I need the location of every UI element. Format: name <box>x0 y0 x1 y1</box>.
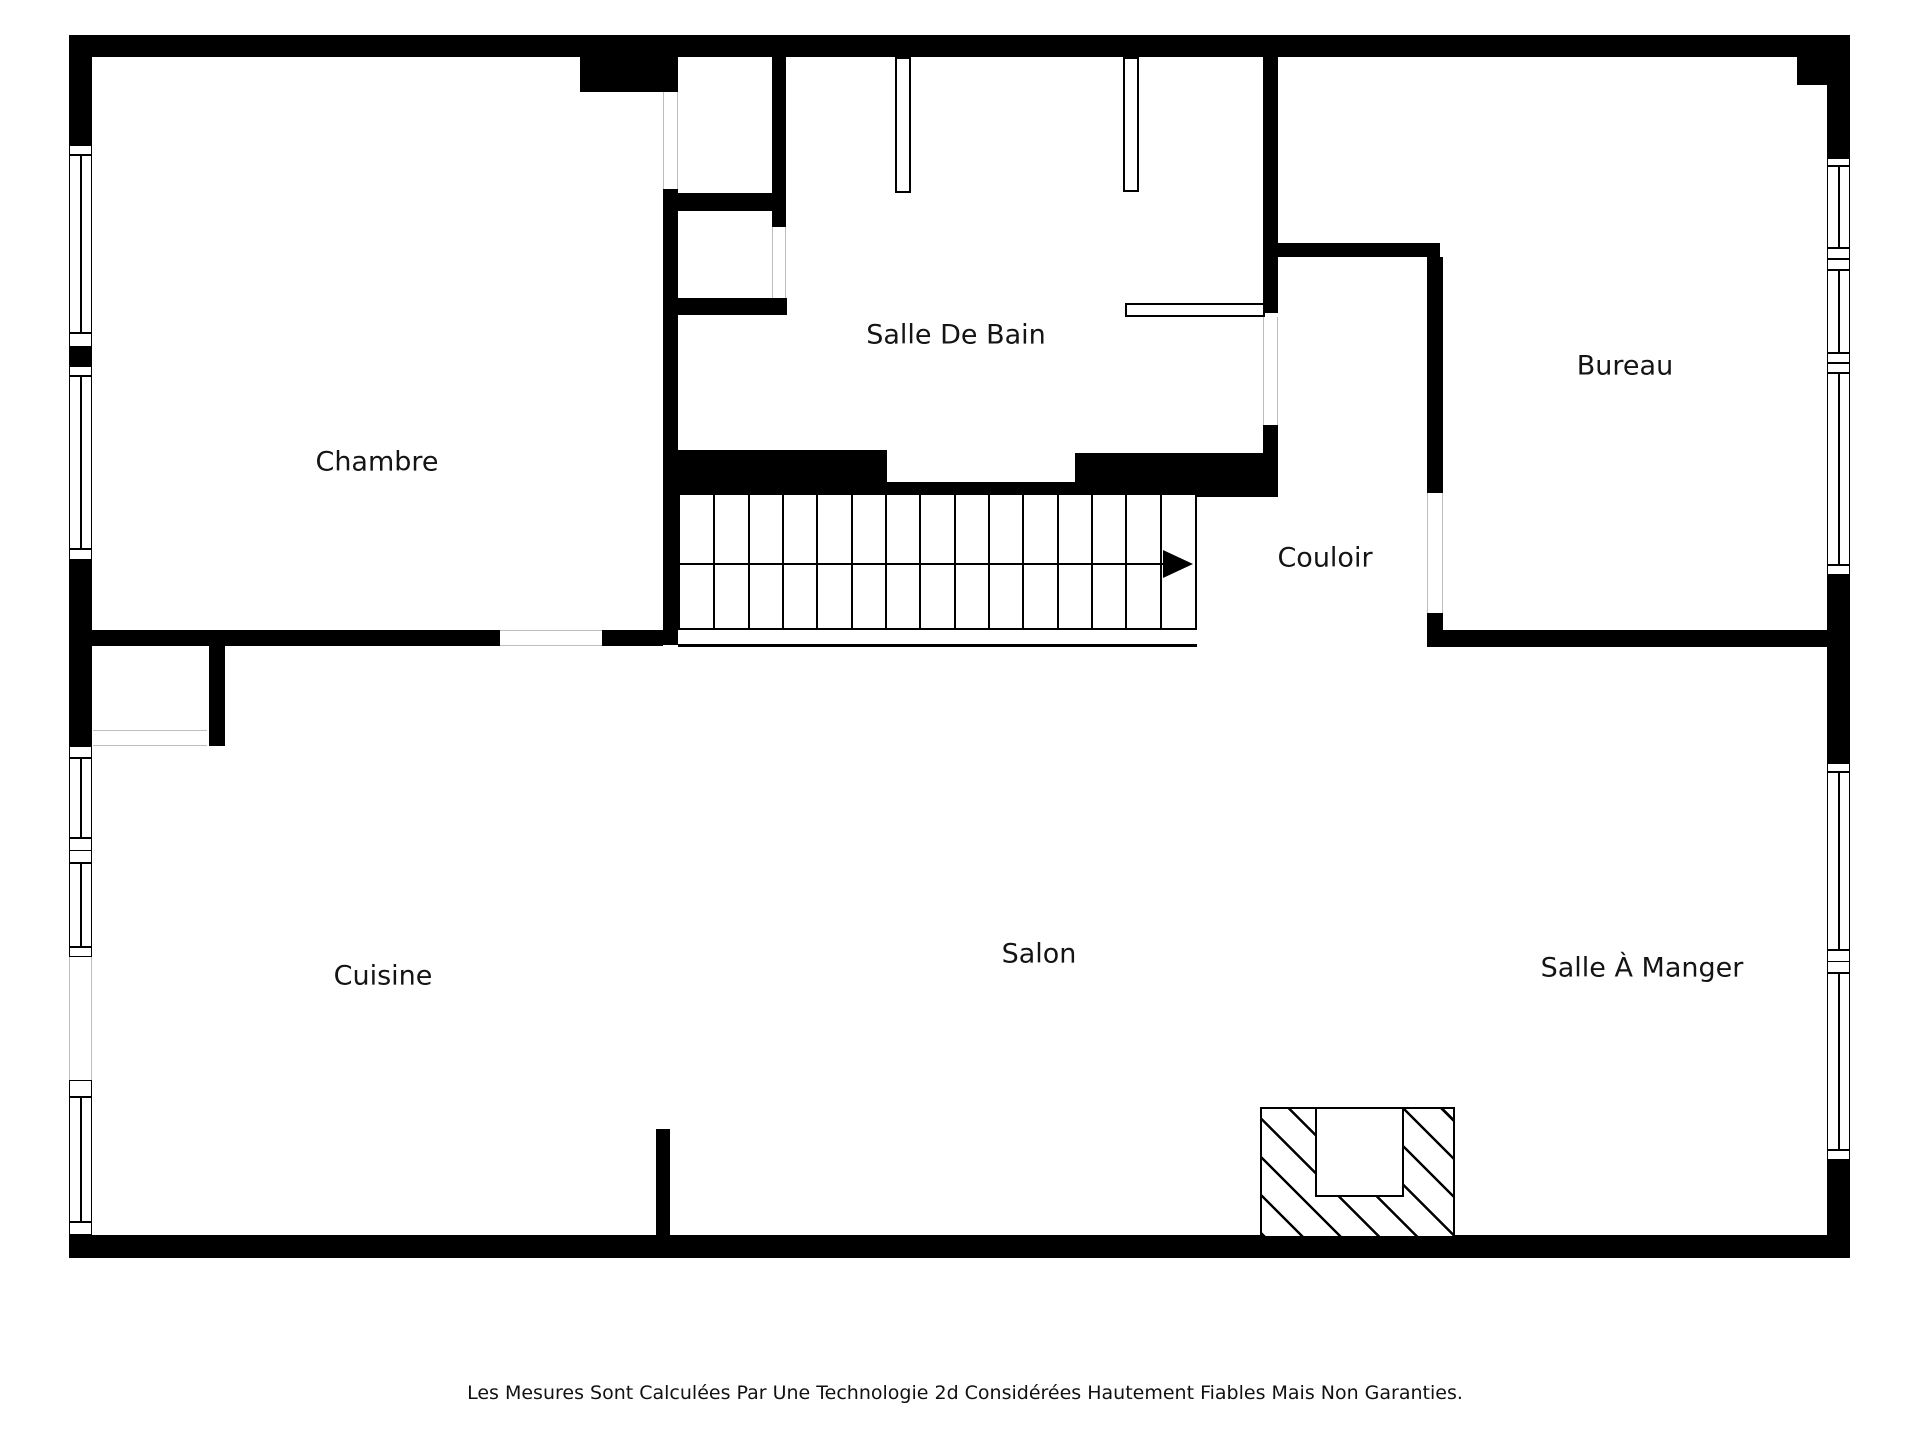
bureau-doorway <box>1427 493 1443 613</box>
top-wall <box>69 35 1850 57</box>
sill <box>69 850 92 863</box>
window-mullion <box>1838 773 1840 949</box>
right-wall-mid <box>1827 575 1850 763</box>
bottom-wall <box>69 1235 1850 1258</box>
sill <box>69 333 92 347</box>
bathroom-fixture-right <box>1123 57 1139 192</box>
window-mullion <box>80 156 82 332</box>
stairs <box>678 493 1197 630</box>
bathroom-fixture-left <box>895 57 911 193</box>
salle-a-manger-window-1 <box>1827 772 1850 950</box>
stair-tread-line <box>885 495 887 628</box>
stair-tread-line <box>1160 495 1162 628</box>
couloir-north-wall <box>1278 243 1440 257</box>
cuisine-window-3 <box>69 1097 92 1222</box>
window-mullion <box>80 377 82 548</box>
chambre-south-wall-left <box>92 630 500 646</box>
sill <box>69 1080 92 1097</box>
stair-tread-line <box>954 495 956 628</box>
chambre-south-wall-right <box>602 630 663 646</box>
bureau-window-2 <box>1827 270 1850 353</box>
bureau-south-wall <box>1427 630 1850 647</box>
sill <box>1827 763 1850 772</box>
sill <box>69 1222 92 1235</box>
bathroom-south-wall-left <box>663 450 887 493</box>
bureau-west-wall-block <box>1427 613 1443 630</box>
bathroom-east-wall-upper <box>1263 57 1278 313</box>
cuisine-window-2 <box>69 863 92 947</box>
salon-stub-wall <box>656 1129 670 1235</box>
sill <box>1827 158 1850 166</box>
partition-top-block <box>580 57 678 92</box>
bathroom-couloir-doorway <box>1263 317 1278 425</box>
sill <box>1827 259 1850 270</box>
bathroom-closet-doorway <box>772 227 786 298</box>
kitchen-patio-doorway <box>69 957 92 1080</box>
stair-tread-line <box>713 495 715 628</box>
sill <box>69 947 92 957</box>
room-label-bureau: Bureau <box>1577 351 1673 382</box>
chambre-window-2 <box>69 376 92 549</box>
closet-divider-upper <box>678 193 772 211</box>
stair-tread-line <box>1022 495 1024 628</box>
sill <box>1827 248 1850 259</box>
bathroom-west-wall <box>772 57 786 227</box>
chambre-doorway <box>500 630 602 646</box>
window-mullion <box>1838 974 1840 1149</box>
sill <box>69 366 92 376</box>
stair-tread-line <box>919 495 921 628</box>
room-label-chambre: Chambre <box>315 447 438 478</box>
sill <box>1827 565 1850 575</box>
floor-plan: Les Mesures Sont Calculées Par Une Techn… <box>0 0 1920 1440</box>
bureau-window-1 <box>1827 166 1850 248</box>
room-label-couloir: Couloir <box>1277 543 1372 574</box>
right-wall-upper <box>1827 85 1850 158</box>
kitchen-closet-east-wall <box>209 646 225 746</box>
sill <box>1827 363 1850 373</box>
chambre-window-1 <box>69 155 92 333</box>
sill <box>1827 353 1850 363</box>
sill <box>69 549 92 560</box>
sill <box>1827 1150 1850 1160</box>
room-label-salle-a-manger: Salle À Manger <box>1541 953 1744 984</box>
sill <box>1827 961 1850 973</box>
stair-tread-line <box>1091 495 1093 628</box>
room-label-salle-de-bain: Salle De Bain <box>866 320 1046 351</box>
top-right-corner-block <box>1797 35 1850 85</box>
stair-tread-line <box>748 495 750 628</box>
stair-direction-arrow-icon <box>1163 550 1193 578</box>
stair-tread-line <box>1057 495 1059 628</box>
cuisine-window-1 <box>69 758 92 838</box>
fireplace <box>1260 1107 1455 1238</box>
kitchen-closet-doorway <box>93 730 207 746</box>
window-mullion <box>80 759 82 837</box>
stair-tread-line <box>816 495 818 628</box>
bathroom-east-wall-lower <box>1263 425 1278 497</box>
window-mullion <box>1838 167 1840 247</box>
left-wall-lower <box>69 560 92 746</box>
bathroom-counter <box>1125 303 1265 317</box>
chambre-closet-doorway <box>663 92 678 189</box>
stairs-underline <box>678 644 1197 647</box>
room-label-cuisine: Cuisine <box>334 961 433 992</box>
left-wall-mid <box>69 347 92 366</box>
bureau-west-wall <box>1427 257 1443 493</box>
sill <box>69 746 92 758</box>
stair-direction-line <box>680 563 1172 565</box>
window-mullion <box>1838 374 1840 564</box>
fireplace-insert <box>1315 1107 1404 1197</box>
chambre-partition-wall <box>663 189 678 645</box>
stair-tread-line <box>782 495 784 628</box>
salle-a-manger-window-2 <box>1827 973 1850 1150</box>
left-wall-upper <box>69 57 92 145</box>
bureau-window-3 <box>1827 373 1850 565</box>
bathroom-south-wall-right <box>1075 453 1278 497</box>
disclaimer-text: Les Mesures Sont Calculées Par Une Techn… <box>467 1382 1463 1404</box>
window-mullion <box>80 864 82 946</box>
stair-tread-line <box>1125 495 1127 628</box>
closet-divider-lower <box>678 298 787 315</box>
window-mullion <box>80 1098 82 1221</box>
stair-tread-line <box>851 495 853 628</box>
sill <box>69 145 92 155</box>
room-label-salon: Salon <box>1002 939 1077 970</box>
window-mullion <box>1838 271 1840 352</box>
stair-tread-line <box>988 495 990 628</box>
right-wall-lower <box>1827 1160 1850 1235</box>
